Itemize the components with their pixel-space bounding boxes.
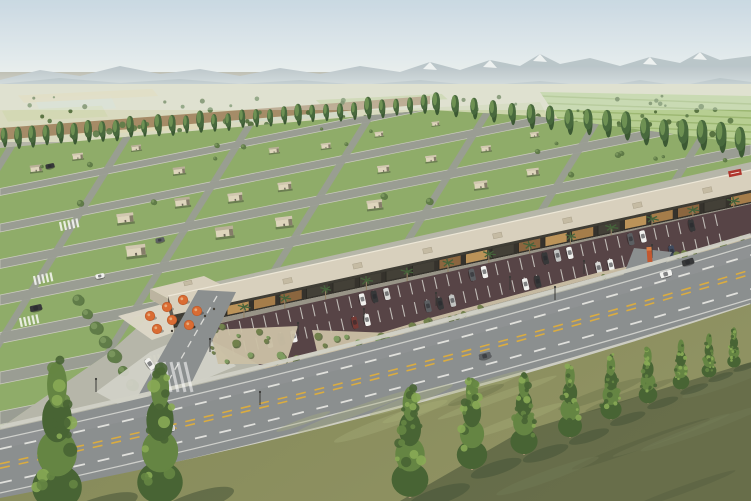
aerial-render-scene [0,0,751,501]
scene-svg [0,0,751,501]
light-wash [0,0,751,501]
